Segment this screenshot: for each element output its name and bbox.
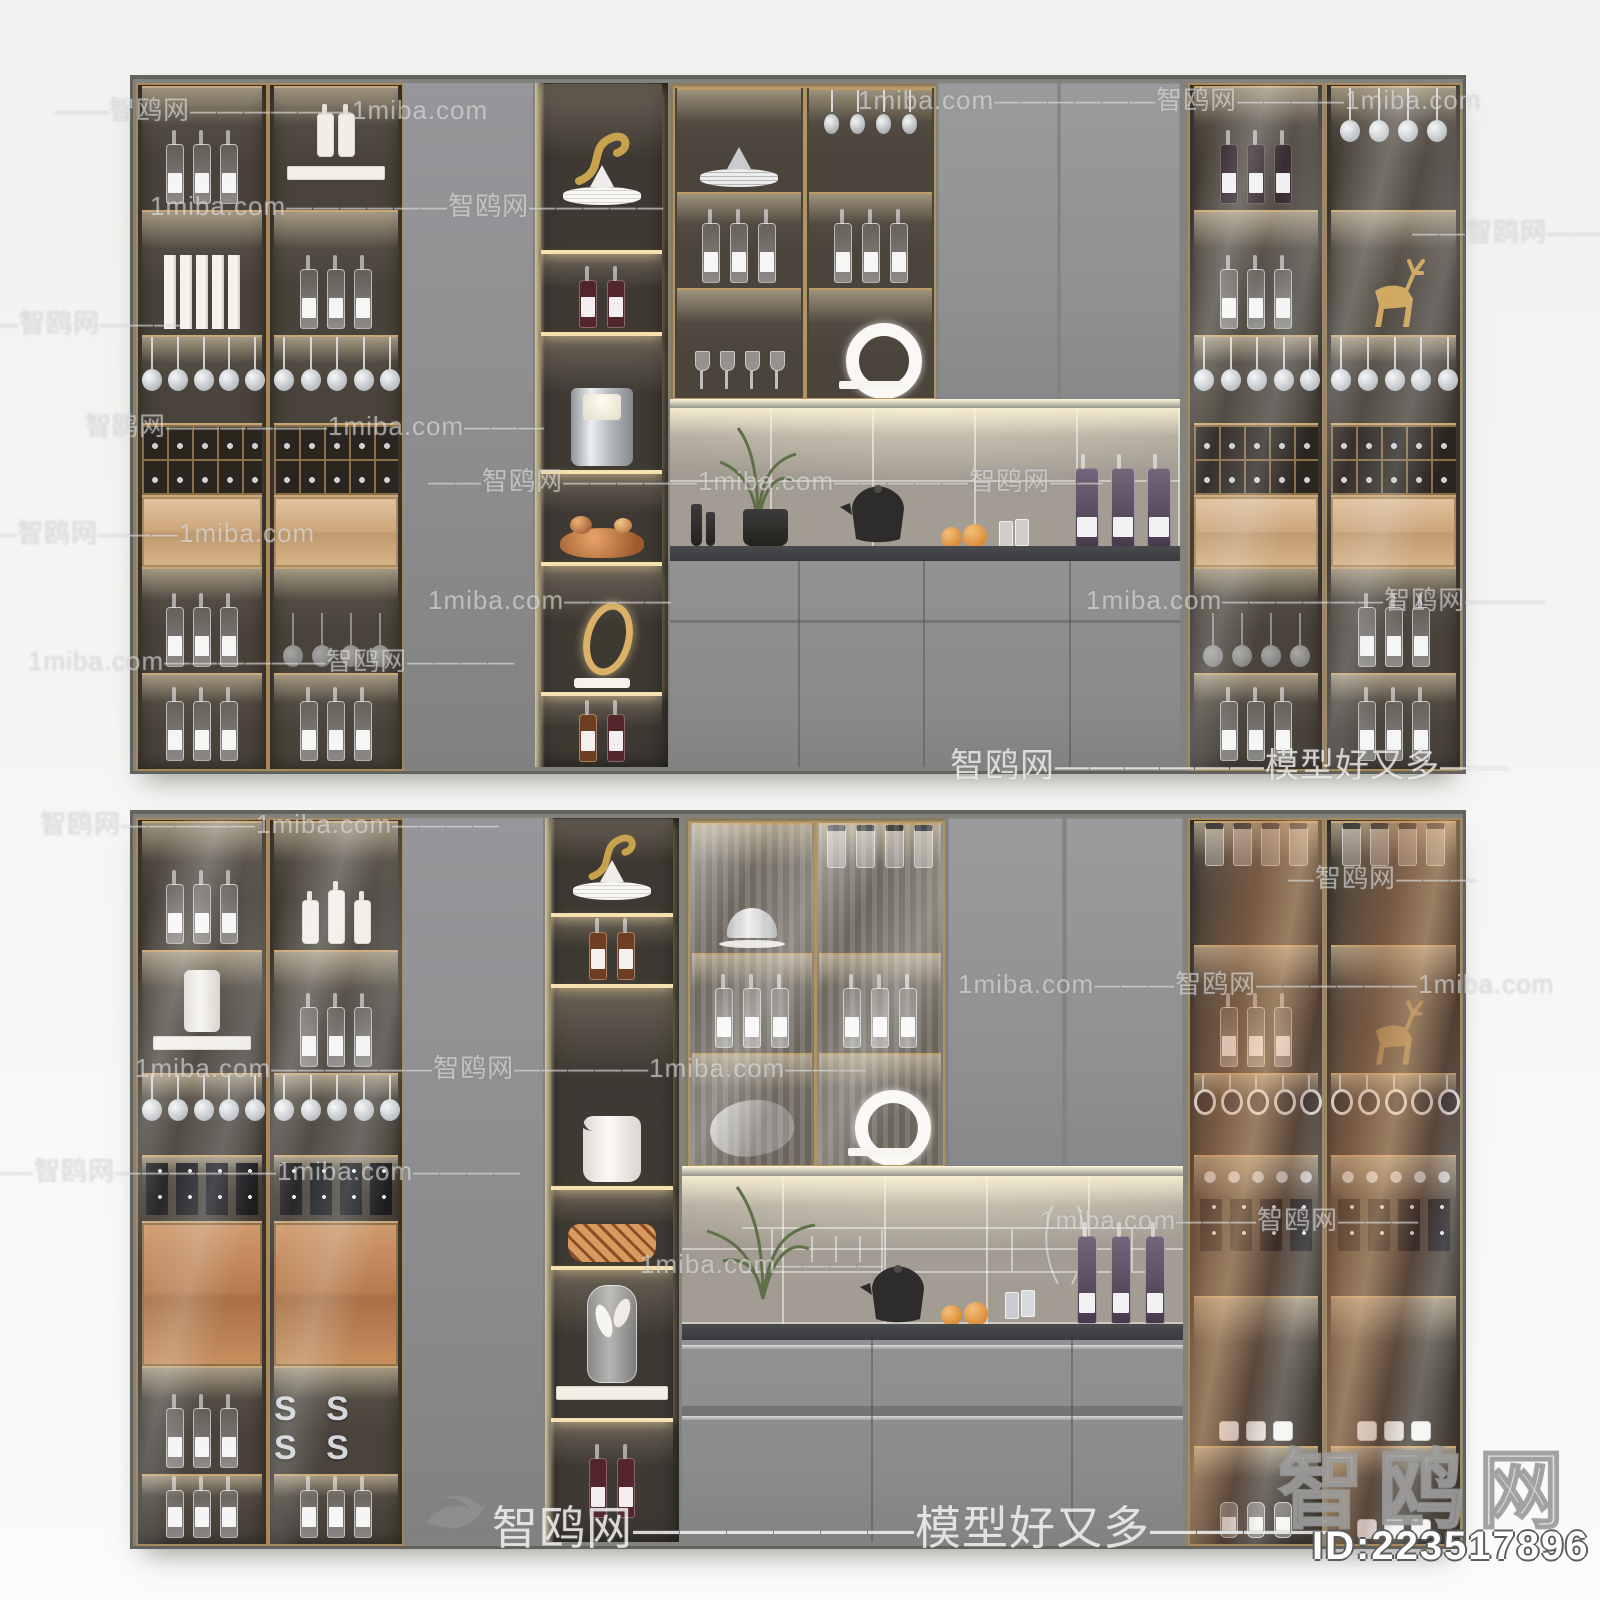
shelf-stemware <box>1331 335 1456 423</box>
wine-glass <box>1385 337 1403 391</box>
bottle <box>715 988 733 1048</box>
glass-door-left <box>688 821 816 1167</box>
display-column-6 <box>1325 83 1462 771</box>
plant-pot <box>743 509 788 546</box>
display-column-1 <box>136 818 268 1546</box>
shelf-medallions <box>1194 1073 1318 1155</box>
shelf-wine <box>541 254 662 336</box>
shelf-reflection <box>1331 1296 1456 1446</box>
wine-glass <box>274 337 292 391</box>
kettle-icon <box>858 1257 936 1327</box>
wine-glass <box>1358 337 1376 391</box>
shelf-bottles <box>142 1474 262 1544</box>
dark-bottle <box>1075 468 1099 548</box>
glass <box>914 825 933 868</box>
bottle <box>220 1490 238 1538</box>
covered-dish <box>719 908 785 948</box>
countertop <box>670 546 1180 561</box>
display-column-5 <box>1188 818 1324 1546</box>
door-gap <box>923 561 925 767</box>
shelf-glasses <box>142 1073 262 1155</box>
shelf-glasses <box>274 1073 398 1155</box>
bottle <box>579 714 597 762</box>
glass <box>327 1075 345 1121</box>
shelf-bottles <box>274 1474 398 1544</box>
bottle <box>300 1007 318 1067</box>
wine-glass <box>1247 337 1265 391</box>
glass <box>301 1075 319 1121</box>
wine-glass <box>301 337 319 391</box>
hanging-cup <box>1411 1075 1429 1115</box>
wine-rack-grid <box>142 425 262 495</box>
wine-glass <box>1427 88 1447 142</box>
shelf-jars <box>1331 1155 1456 1296</box>
plant-icon <box>693 1169 823 1327</box>
metal-cup <box>1021 1290 1035 1317</box>
white-card <box>1358 1422 1376 1440</box>
jar-grid <box>1338 1199 1450 1251</box>
bottle <box>354 701 372 761</box>
wine-glass <box>194 337 211 391</box>
shelf-spoons <box>809 88 932 192</box>
decor-letters: S S S S <box>274 1390 398 1468</box>
wine-glass <box>1194 337 1212 391</box>
wine-glass <box>168 337 185 391</box>
bottle <box>220 884 238 944</box>
base-cabinets <box>670 561 1180 767</box>
shelf-bottles <box>809 192 932 288</box>
drawer-handle-strip <box>682 1345 1183 1349</box>
bottle <box>1247 1007 1265 1067</box>
bottle <box>193 1408 211 1468</box>
countertop <box>682 1324 1183 1340</box>
bottle <box>220 701 238 761</box>
bottle <box>607 714 625 762</box>
bottle <box>1247 269 1265 329</box>
kettle-icon <box>838 477 916 547</box>
wood-drawer-front <box>1194 497 1318 567</box>
wine-glass <box>245 337 262 391</box>
upper-grey-door <box>1060 83 1180 399</box>
tall-grey-panel <box>403 818 543 1542</box>
orange-fruit <box>941 1305 962 1326</box>
shelf-glasses <box>274 567 398 673</box>
dark-bottle <box>1220 144 1238 204</box>
wine-glass <box>219 337 236 391</box>
wine-rack-grid <box>1331 425 1456 495</box>
bottle <box>166 1490 184 1538</box>
capped-glass <box>1261 823 1280 866</box>
white-jar <box>1274 1502 1292 1538</box>
bottle <box>1274 1007 1292 1067</box>
shelf-glasses <box>819 823 941 953</box>
shelf-bottles <box>274 950 398 1073</box>
red-wine-bottle <box>617 1458 635 1518</box>
bottle <box>1385 701 1403 761</box>
shelf-dome <box>692 823 812 953</box>
white-jar <box>1220 1502 1238 1538</box>
shelf-bottles <box>274 673 398 767</box>
shelf-jars <box>274 1155 398 1221</box>
bottle <box>166 144 184 204</box>
deer-sculpture-icon <box>1357 239 1431 329</box>
wine-glass <box>694 351 709 389</box>
orange-fruit <box>964 1302 988 1326</box>
copper-fruit-bowl <box>560 528 644 558</box>
door-gap <box>1071 1340 1073 1542</box>
bottle <box>193 884 211 944</box>
shelf-jars <box>1194 1155 1318 1296</box>
wine-glass <box>1411 337 1429 391</box>
hanging-cup <box>1194 1075 1212 1115</box>
bottle <box>730 223 748 283</box>
bottle <box>758 223 776 283</box>
bottle <box>1412 701 1430 761</box>
shelf-bottles <box>142 86 262 210</box>
capped-glass <box>1370 823 1389 866</box>
base-cabinets <box>682 1340 1183 1542</box>
candle-bucket <box>571 388 633 466</box>
wood-drawer-front <box>142 497 262 567</box>
bottle <box>1358 607 1376 667</box>
display-column-5 <box>1188 83 1324 771</box>
counter-bottles <box>1077 1236 1165 1324</box>
bottle <box>617 932 635 980</box>
counter-bottles <box>1075 468 1171 548</box>
glass <box>1232 613 1252 667</box>
shelf-books <box>142 210 262 335</box>
wine-glass <box>1221 337 1239 391</box>
shelf-cosmetics <box>274 821 398 950</box>
glass <box>380 1075 398 1121</box>
white-bottle <box>302 900 319 944</box>
wine-glass <box>1369 88 1389 142</box>
display-column-2 <box>268 83 404 771</box>
shelf-basket <box>551 1190 673 1270</box>
glass <box>274 1075 292 1121</box>
shelf-bowl <box>692 1053 812 1161</box>
glass <box>1290 613 1310 667</box>
dark-bottle <box>1247 144 1265 204</box>
center-glass-cabinet <box>685 818 944 1166</box>
white-card <box>1385 1520 1403 1538</box>
shelf-bottles <box>1194 210 1318 335</box>
shelf-kettle <box>551 988 673 1190</box>
bottle <box>1358 701 1376 761</box>
copper-drawers <box>142 1221 262 1366</box>
bottle <box>862 223 880 283</box>
gold-sculpture <box>574 602 630 688</box>
capped-glass <box>1342 823 1361 866</box>
shelf-book <box>142 950 262 1073</box>
red-wine-bottle <box>589 1458 607 1518</box>
shelf-bottles <box>1331 673 1456 767</box>
bottle <box>193 607 211 667</box>
glass-door-right <box>815 821 945 1167</box>
bud-vase <box>706 512 715 546</box>
dark-bottle <box>1111 1236 1131 1324</box>
hanging-cup <box>1221 1075 1239 1115</box>
wine-glass <box>1300 337 1318 391</box>
books <box>164 255 240 329</box>
plate-stack <box>700 169 778 187</box>
white-kettle <box>575 1090 649 1182</box>
bottle <box>193 701 211 761</box>
shelf-bottles <box>677 192 801 288</box>
white-card <box>1412 1520 1430 1538</box>
shelf-bottles <box>1194 673 1318 767</box>
white-jar <box>1247 1502 1265 1538</box>
ladle <box>902 90 918 134</box>
dark-bottle <box>1274 144 1292 204</box>
bottle <box>166 701 184 761</box>
deer-sculpture-icon <box>1359 981 1429 1067</box>
wine-rack <box>274 423 398 495</box>
bud-vase <box>691 504 702 546</box>
glass <box>1203 613 1223 667</box>
wine-glass <box>1331 337 1349 391</box>
wine-rack <box>142 423 262 495</box>
wine-glass <box>1438 337 1456 391</box>
copper-drawers <box>274 1221 398 1366</box>
shelf-glasses <box>1194 567 1318 673</box>
shelf-sculpture <box>551 819 673 917</box>
capped-glass <box>1426 823 1445 866</box>
upper-grey-door <box>948 818 1063 1166</box>
bottle <box>1220 701 1238 761</box>
ladle <box>876 90 892 134</box>
white-card <box>1274 1422 1292 1440</box>
bottle <box>702 223 720 283</box>
shelf-sculpture <box>819 1053 941 1161</box>
bottle <box>871 988 889 1048</box>
display-column-2: S S S S <box>268 818 404 1546</box>
bottle <box>327 269 345 329</box>
bottle <box>327 1007 345 1067</box>
wine-glass <box>744 351 759 389</box>
bottle <box>1247 701 1265 761</box>
shelf-sculpture <box>809 288 932 394</box>
bottle <box>890 223 908 283</box>
glass <box>885 825 904 868</box>
shelf-bottles <box>142 673 262 767</box>
white-bottle <box>317 113 334 157</box>
drawer-gap <box>670 620 1180 623</box>
white-sculpture <box>848 1090 912 1156</box>
bottle <box>1385 607 1403 667</box>
glass <box>370 613 390 667</box>
white-card <box>1412 1422 1430 1440</box>
bottle <box>1412 607 1430 667</box>
hanging-cup <box>1247 1075 1265 1115</box>
bottle <box>354 1007 372 1067</box>
dark-bottle <box>1077 1236 1097 1324</box>
drawer-handle-strip <box>682 1416 1183 1420</box>
wood-drawers <box>142 495 262 567</box>
open-shelf-column <box>535 83 668 767</box>
shelf-sculpture <box>541 84 662 254</box>
bottle <box>1220 1007 1238 1067</box>
under-cabinet-light <box>670 399 1180 408</box>
glass-door-left <box>673 86 805 400</box>
bottle <box>771 988 789 1048</box>
shelf-bottles <box>274 210 398 335</box>
book-stack <box>287 166 385 180</box>
glass <box>856 825 875 868</box>
shelf-glasses <box>1331 86 1456 210</box>
ladle <box>850 90 866 134</box>
glass <box>312 613 332 667</box>
bottle <box>193 1490 211 1538</box>
glass-cup <box>1015 519 1029 546</box>
wine-rack-grid <box>1194 425 1318 495</box>
plate-stack <box>563 187 641 205</box>
shelf-deer <box>1331 210 1456 335</box>
shelf-reflection <box>1194 1296 1318 1446</box>
hanging-cup <box>1300 1075 1318 1115</box>
shelf-bottles <box>819 953 941 1053</box>
glass <box>341 613 361 667</box>
upper-grey-door <box>1066 818 1183 1166</box>
bottle <box>1274 269 1292 329</box>
bottle <box>300 1490 318 1538</box>
glass-vase <box>587 1285 637 1383</box>
bottle <box>1274 701 1292 761</box>
jar-grid <box>146 1163 258 1215</box>
bottle <box>899 988 917 1048</box>
jar-grid <box>280 1163 392 1215</box>
bottle <box>743 988 761 1048</box>
wine-glass <box>142 337 159 391</box>
shelf-cards <box>1331 1446 1456 1544</box>
glass-cup <box>999 521 1013 548</box>
shelf-jars-white <box>1194 1446 1318 1544</box>
shelf-vase <box>551 1270 673 1422</box>
shelf-bottles <box>1331 567 1456 673</box>
bottom-render-cabinet: S S S S <box>130 810 1466 1549</box>
shelf-bottles <box>142 821 262 950</box>
glass <box>219 1075 236 1121</box>
glass <box>168 1075 185 1121</box>
white-card <box>1358 1520 1376 1538</box>
wine-glass <box>719 351 734 389</box>
capped-glass <box>1289 823 1308 866</box>
tall-grey-panel <box>403 83 533 767</box>
wine-glass <box>769 351 784 389</box>
shelf-plates <box>677 88 801 192</box>
glass <box>827 825 846 868</box>
orange-fruit <box>941 527 962 548</box>
display-column-1 <box>136 83 268 771</box>
hanging-cup <box>1385 1075 1403 1115</box>
jar-grid <box>1200 1199 1312 1251</box>
shelf-medallions <box>1331 1073 1456 1155</box>
wine-glass <box>1398 88 1418 142</box>
glass <box>354 1075 372 1121</box>
shelf-bottles <box>142 567 262 673</box>
dark-bottle <box>1145 1236 1165 1324</box>
book <box>556 1386 668 1400</box>
wood-drawer-front <box>274 497 398 567</box>
copper-drawer-front <box>142 1223 262 1366</box>
wine-rack <box>1194 423 1318 495</box>
wood-drawer-front <box>1331 497 1456 567</box>
bottle <box>220 1408 238 1468</box>
metal-cup <box>1005 1292 1019 1319</box>
bottle <box>327 701 345 761</box>
dark-bottle <box>1111 468 1135 548</box>
white-vessel <box>184 970 220 1032</box>
shelf-stemware <box>274 335 398 423</box>
bottle <box>354 269 372 329</box>
shelf-deer <box>1331 945 1456 1073</box>
bottle <box>843 988 861 1048</box>
bottle <box>327 1490 345 1538</box>
hanging-cup <box>1438 1075 1456 1115</box>
glass <box>142 1075 159 1121</box>
glass <box>283 613 303 667</box>
shelf-bottles <box>692 953 812 1053</box>
display-column-6 <box>1325 818 1462 1546</box>
wine-glass <box>354 337 372 391</box>
door-gap <box>798 561 800 767</box>
white-card <box>1385 1422 1403 1440</box>
glass <box>194 1075 211 1121</box>
door-gap <box>1069 561 1071 767</box>
shelf-cosmetics <box>274 86 398 210</box>
dark-bottle <box>1147 468 1171 548</box>
wood-drawers <box>1194 495 1318 567</box>
wine-rack-grid <box>274 425 398 495</box>
upper-grey-door <box>938 83 1058 399</box>
wood-drawers <box>274 495 398 567</box>
shelf-bottles <box>1194 86 1318 210</box>
hanging-cup <box>1331 1075 1349 1115</box>
open-shelf-column <box>545 818 679 1542</box>
capped-glass <box>1398 823 1417 866</box>
bottle <box>300 701 318 761</box>
orange-fruit <box>963 524 987 548</box>
red-wine-bottle <box>579 280 597 328</box>
white-bottle <box>338 113 355 157</box>
wine-glass <box>327 337 345 391</box>
wood-drawers <box>1331 495 1456 567</box>
shelf-bottles <box>1194 945 1318 1073</box>
shelf-stemware <box>1194 335 1318 423</box>
shelf-fruit <box>541 474 662 566</box>
white-sculpture <box>839 323 903 389</box>
ladle <box>824 90 840 134</box>
wine-rack <box>1331 423 1456 495</box>
glass <box>245 1075 262 1121</box>
drawer-gap <box>682 1406 1183 1416</box>
white-bottle <box>354 900 371 944</box>
capped-glass <box>1233 823 1252 866</box>
white-card <box>1220 1422 1238 1440</box>
bottle <box>166 1408 184 1468</box>
bottle <box>300 269 318 329</box>
wine-glass <box>380 337 398 391</box>
bottle <box>220 144 238 204</box>
copper-drawer-front <box>274 1223 398 1366</box>
red-wine-bottle <box>607 280 625 328</box>
shelf-bottles <box>541 696 662 766</box>
capped-glass <box>1205 823 1224 866</box>
shelf-letters: S S S S <box>274 1366 398 1474</box>
copper-basket <box>568 1224 656 1262</box>
bottle <box>834 223 852 283</box>
glass <box>1261 613 1281 667</box>
